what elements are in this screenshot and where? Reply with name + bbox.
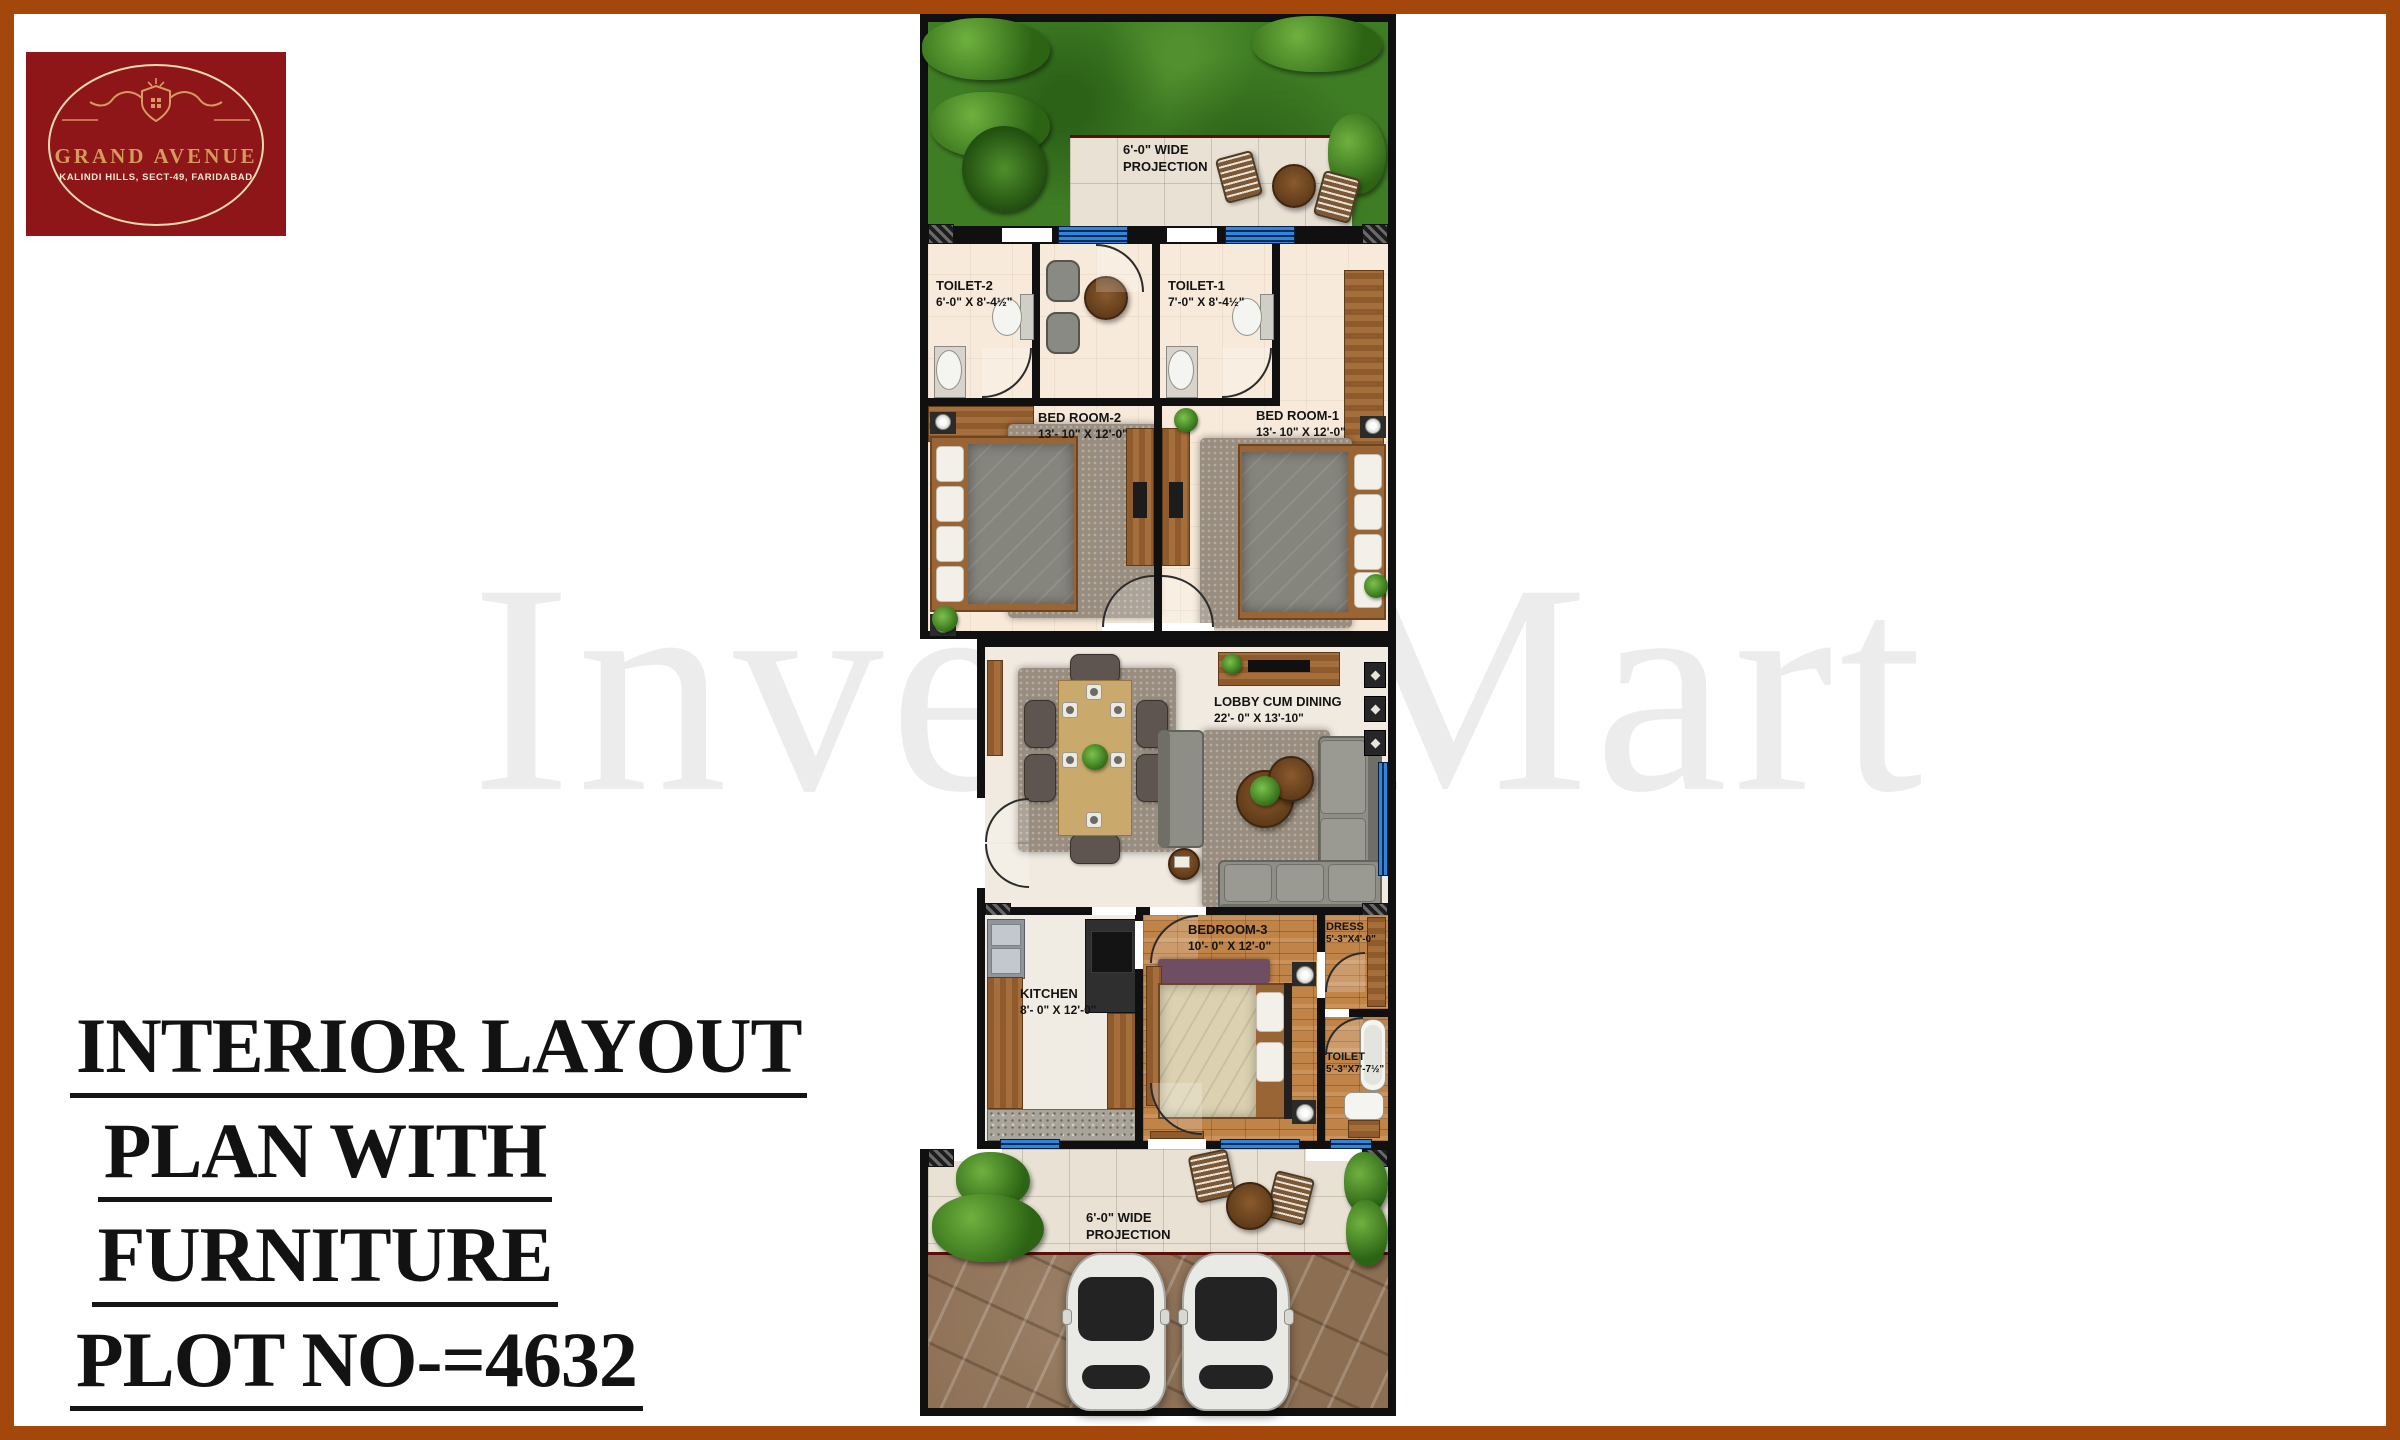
- window: [1330, 1139, 1372, 1149]
- bush: [932, 1194, 1044, 1262]
- caption-line-2: PLAN WITH: [98, 1111, 552, 1203]
- room-label-toilet-1: TOILET-1 7'-0" X 8'-4½": [1168, 278, 1244, 310]
- logo-subtitle: KALINDI HILLS, SECT-49, FARIDABAD: [26, 172, 286, 183]
- wall-niche: [1364, 696, 1386, 722]
- pillow: [936, 566, 964, 602]
- door-opening: [1002, 228, 1052, 242]
- basin-toilet-1: [1168, 350, 1194, 390]
- car-1-windshield: [1078, 1277, 1154, 1341]
- room-label-kitchen: KITCHEN 8'- 0" X 12'-0": [1020, 986, 1096, 1018]
- main-door-opening: [977, 798, 985, 888]
- bedroom1-name: BED ROOM-1: [1256, 408, 1346, 425]
- room-label-bedroom-2: BED ROOM-2 13'- 10" X 12'-0": [1038, 410, 1128, 442]
- door-opening: [1135, 921, 1143, 969]
- bed-2-blanket: [968, 444, 1074, 604]
- car-mirror: [1062, 1309, 1072, 1325]
- plant: [1222, 654, 1242, 674]
- console-cabinet: [987, 660, 1003, 756]
- pillow: [1256, 1042, 1284, 1082]
- bedroom3-dims: 10'- 0" X 12'-0": [1188, 939, 1271, 954]
- plate: [1062, 752, 1078, 768]
- wall: [928, 226, 1388, 244]
- door-opening: [1325, 1009, 1349, 1017]
- basin-toilet-3: [1344, 1092, 1384, 1120]
- toilet3-dims: 5'-3"X7'-7½": [1326, 1064, 1384, 1077]
- door-opening: [1092, 907, 1136, 915]
- dress-name: DRESS: [1326, 920, 1376, 934]
- wall-niche: [1364, 730, 1386, 756]
- caption-line-4: PLOT NO-=4632: [70, 1320, 643, 1412]
- headboard: [1284, 983, 1292, 1119]
- toilet1-dims: 7'-0" X 8'-4½": [1168, 295, 1244, 310]
- lamp: [1296, 1104, 1314, 1122]
- column: [928, 1149, 954, 1167]
- runner-rug: [1158, 959, 1270, 983]
- room-label-bedroom-1: BED ROOM-1 13'- 10" X 12'-0": [1256, 408, 1346, 440]
- lobby-name: LOBBY CUM DINING: [1214, 694, 1342, 711]
- car-1-rear-glass: [1082, 1365, 1150, 1389]
- bedroom2-name: BED ROOM-2: [1038, 410, 1128, 427]
- logo-title: GRAND AVENUE: [26, 144, 286, 169]
- kitchen-counter: [1107, 1013, 1137, 1109]
- door-opening: [1150, 907, 1206, 915]
- vanity: [1348, 1120, 1380, 1138]
- window: [1220, 1139, 1300, 1149]
- window: [1378, 762, 1388, 876]
- room-label-bedroom-3: BEDROOM-3 10'- 0" X 12'-0": [1188, 922, 1271, 954]
- window: [1000, 1139, 1060, 1149]
- car-2-windshield: [1195, 1277, 1277, 1341]
- sofa-cushion: [1328, 864, 1376, 902]
- sink-bowl: [991, 924, 1021, 946]
- projection-top-line2: PROJECTION: [1123, 159, 1208, 176]
- column: [928, 224, 954, 244]
- projection-bottom-label: 6'-0" WIDE PROJECTION: [1086, 1210, 1171, 1243]
- wardrobe-tv-panel: [1169, 482, 1183, 518]
- outdoor-table: [1272, 164, 1316, 208]
- car-mirror: [1178, 1309, 1188, 1325]
- kitchen-counter-granite: [987, 1109, 1137, 1141]
- car-2-rear-glass: [1199, 1365, 1273, 1389]
- crest-icon: [56, 74, 256, 138]
- kitchen-dims: 8'- 0" X 12'-0": [1020, 1003, 1096, 1018]
- plate: [1062, 702, 1078, 718]
- hob: [1091, 931, 1133, 973]
- plant: [932, 606, 958, 632]
- sink-bowl: [991, 948, 1021, 974]
- lamp: [1365, 418, 1381, 434]
- pillow: [936, 526, 964, 562]
- wall-niche: [1364, 662, 1386, 688]
- projection-top-line1: 6'-0" WIDE: [1123, 142, 1208, 159]
- toilet2-name: TOILET-2: [936, 278, 1012, 295]
- wall: [1154, 406, 1162, 631]
- lounge-chair: [1046, 312, 1080, 354]
- lobby-dims: 22'- 0" X 13'-10": [1214, 711, 1342, 726]
- door-opening: [1317, 952, 1325, 998]
- book: [1174, 856, 1190, 868]
- lamp: [935, 414, 951, 430]
- plate: [1110, 702, 1126, 718]
- wall: [1152, 244, 1160, 406]
- bush: [1346, 1200, 1388, 1266]
- floor-plan: 6'-0" WIDE PROJECTION TOILET-2 6'-0" X 8…: [920, 14, 1396, 1416]
- caption-line-1: INTERIOR LAYOUT: [70, 1006, 807, 1098]
- pillow: [1354, 454, 1382, 490]
- pillow: [1354, 534, 1382, 570]
- brand-logo: GRAND AVENUE KALINDI HILLS, SECT-49, FAR…: [26, 52, 286, 236]
- car-mirror: [1284, 1309, 1294, 1325]
- pillow: [936, 486, 964, 522]
- window: [1058, 226, 1128, 244]
- wc-tank: [1020, 294, 1034, 340]
- wall: [1317, 915, 1325, 1141]
- room-label-dress: DRESS 5'-3"X4'-0": [1326, 920, 1376, 947]
- projection-bottom-line2: PROJECTION: [1086, 1227, 1171, 1244]
- pillow: [936, 446, 964, 482]
- room-label-toilet-2: TOILET-2 6'-0" X 8'-4½": [936, 278, 1012, 310]
- bed-1-blanket: [1242, 452, 1348, 612]
- dining-chair: [1024, 700, 1056, 748]
- plate: [1086, 684, 1102, 700]
- room-label-lobby: LOBBY CUM DINING 22'- 0" X 13'-10": [1214, 694, 1342, 726]
- dining-chair: [1070, 834, 1120, 864]
- toilet3-name: TOILET: [1326, 1050, 1384, 1064]
- loveseat-back: [1158, 730, 1170, 848]
- bedroom1-dims: 13'- 10" X 12'-0": [1256, 425, 1346, 440]
- wall: [928, 398, 1280, 406]
- kitchen-name: KITCHEN: [1020, 986, 1096, 1003]
- wardrobe-tv-panel: [1133, 482, 1147, 518]
- basin-toilet-2: [936, 350, 962, 390]
- plant: [1250, 776, 1280, 806]
- toilet2-dims: 6'-0" X 8'-4½": [936, 295, 1012, 310]
- projection-bottom-line1: 6'-0" WIDE: [1086, 1210, 1171, 1227]
- toilet1-name: TOILET-1: [1168, 278, 1244, 295]
- outdoor-table: [1226, 1182, 1274, 1230]
- projection-edge-line: [1070, 135, 1352, 138]
- kitchen-counter: [987, 977, 1023, 1109]
- bedroom3-name: BEDROOM-3: [1188, 922, 1271, 939]
- pillow: [1256, 992, 1284, 1032]
- page: Invest Mart GRAND AVENUE KALINDI HILLS, …: [0, 0, 2400, 1440]
- dining-chair: [1024, 754, 1056, 802]
- sofa-cushion: [1224, 864, 1272, 902]
- table-centerpiece: [1082, 744, 1108, 770]
- sofa-cushion: [1320, 740, 1366, 814]
- room-label-toilet-3: TOILET 5'-3"X7'-7½": [1326, 1050, 1384, 1077]
- lounge-chair: [1046, 260, 1080, 302]
- plant: [1364, 574, 1388, 598]
- door-opening: [1148, 1139, 1206, 1149]
- palm-plant: [962, 126, 1046, 212]
- door-opening: [1167, 228, 1217, 242]
- wc-tank: [1260, 294, 1274, 340]
- projection-top-label: 6'-0" WIDE PROJECTION: [1123, 142, 1208, 175]
- column: [1362, 224, 1388, 244]
- window: [1225, 226, 1295, 244]
- car-mirror: [1160, 1309, 1170, 1325]
- plate: [1110, 752, 1126, 768]
- plan-caption: INTERIOR LAYOUT PLAN WITH FURNITURE PLOT…: [70, 1006, 580, 1424]
- dress-dims: 5'-3"X4'-0": [1326, 934, 1376, 947]
- bush: [922, 18, 1050, 80]
- bedroom2-dims: 13'- 10" X 12'-0": [1038, 427, 1128, 442]
- lamp: [1296, 966, 1314, 984]
- bush: [1252, 16, 1382, 72]
- pillow: [1354, 494, 1382, 530]
- plate: [1086, 812, 1102, 828]
- tv: [1248, 660, 1310, 672]
- caption-line-3: FURNITURE: [92, 1215, 559, 1307]
- sofa-cushion: [1276, 864, 1324, 902]
- plant: [1174, 408, 1198, 432]
